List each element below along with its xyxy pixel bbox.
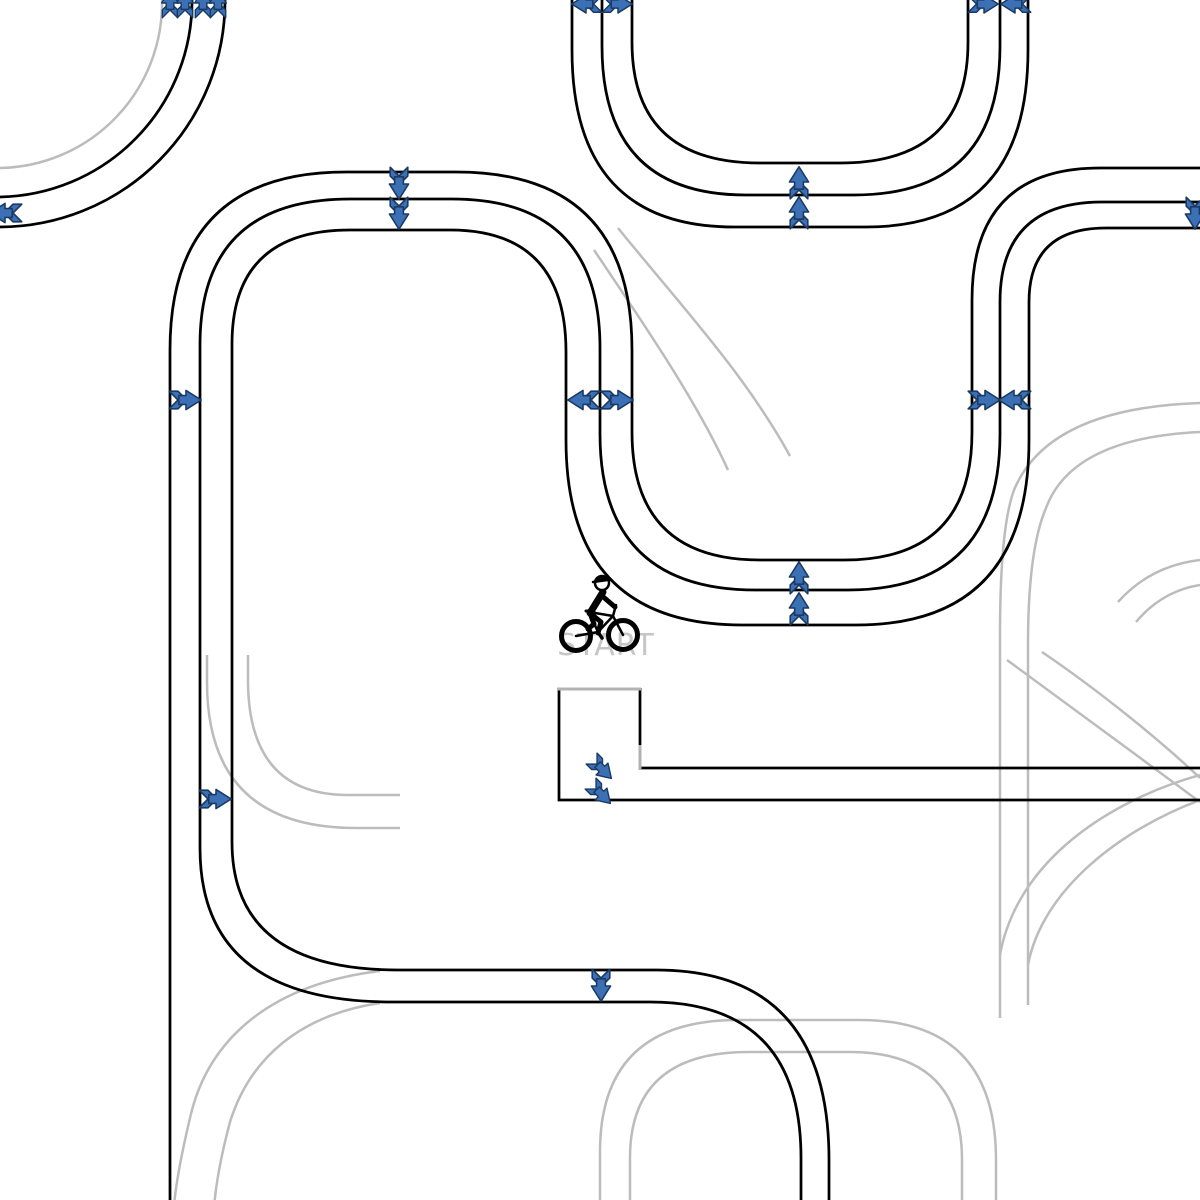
ghost-track-path <box>1028 800 1200 965</box>
ghost-track-path <box>630 1052 962 1200</box>
direction-arrow-right-icon <box>601 390 633 409</box>
direction-arrow-down-right-icon <box>585 778 617 810</box>
ghost-track-path <box>1028 432 1200 1005</box>
ghost-track-path <box>1136 585 1200 622</box>
direction-arrow-left-icon <box>572 0 602 13</box>
ghost-track-path <box>0 0 162 168</box>
ghost-track-path <box>248 655 400 795</box>
arrow-glyph <box>978 390 1000 409</box>
arrow-glyph <box>977 0 998 13</box>
ghost-track-path <box>1042 652 1200 778</box>
arrow-glyph <box>568 390 590 409</box>
ghost-track-path <box>174 971 380 1200</box>
rider-back-leg <box>588 613 594 629</box>
start-label: START <box>557 628 655 663</box>
direction-arrow-down-right-icon <box>586 753 618 785</box>
direction-arrow-right-icon <box>968 0 998 13</box>
arrow-glyph <box>611 390 633 409</box>
direction-arrow-left-icon <box>568 390 600 409</box>
arrow-glyph <box>572 0 593 13</box>
direction-arrow-layer <box>0 0 1200 1001</box>
track-path <box>200 199 1200 1200</box>
ghost-track-path <box>1000 403 1200 1018</box>
arrow-glyph <box>389 207 408 229</box>
arrow-glyph <box>789 197 808 219</box>
direction-arrow-up-icon <box>162 0 179 18</box>
arrow-glyph <box>209 789 231 808</box>
direction-arrow-right-icon <box>199 789 231 808</box>
arrow-glyph <box>179 390 201 409</box>
direction-arrow-up-icon <box>210 0 227 18</box>
direction-arrow-up-icon <box>789 593 808 625</box>
track-path <box>0 0 192 197</box>
arrow-glyph <box>611 0 632 13</box>
direction-arrow-left-icon <box>1001 0 1031 13</box>
ghost-track-path <box>1118 560 1200 602</box>
arrow-glyph <box>789 562 808 584</box>
arrow-glyph <box>591 784 617 810</box>
rider-arm <box>601 595 615 607</box>
direction-arrow-down-icon <box>389 197 408 229</box>
direction-arrow-left-icon <box>999 390 1031 409</box>
direction-arrow-right-icon <box>169 390 201 409</box>
arrow-glyph <box>1001 0 1022 13</box>
track-scene: START <box>0 0 1200 1200</box>
track-path <box>170 168 1200 1200</box>
direction-arrow-right-icon <box>602 0 632 13</box>
arrow-glyph <box>591 979 610 1001</box>
track-path <box>559 688 1200 800</box>
ghost-track-path <box>594 250 728 470</box>
direction-arrow-up-icon <box>195 0 212 18</box>
arrow-glyph <box>999 390 1021 409</box>
direction-arrow-up-icon <box>789 197 808 229</box>
ghost-track-path <box>207 655 400 828</box>
arrow-glyph <box>1185 207 1200 229</box>
game-canvas[interactable]: START <box>0 0 1200 1200</box>
track-path <box>602 0 1000 195</box>
ghost-track-path <box>1000 775 1200 955</box>
track-path <box>632 0 968 163</box>
direction-arrow-up-icon <box>177 0 194 18</box>
direction-arrow-down-icon <box>591 969 610 1001</box>
arrow-glyph <box>789 593 808 615</box>
arrow-glyph <box>789 167 808 189</box>
arrow-glyph <box>389 177 408 199</box>
track-path <box>572 0 1028 227</box>
ghost-track-path <box>1007 660 1200 802</box>
ghost-track-path <box>214 1003 380 1200</box>
direction-arrow-left-icon <box>0 203 22 222</box>
